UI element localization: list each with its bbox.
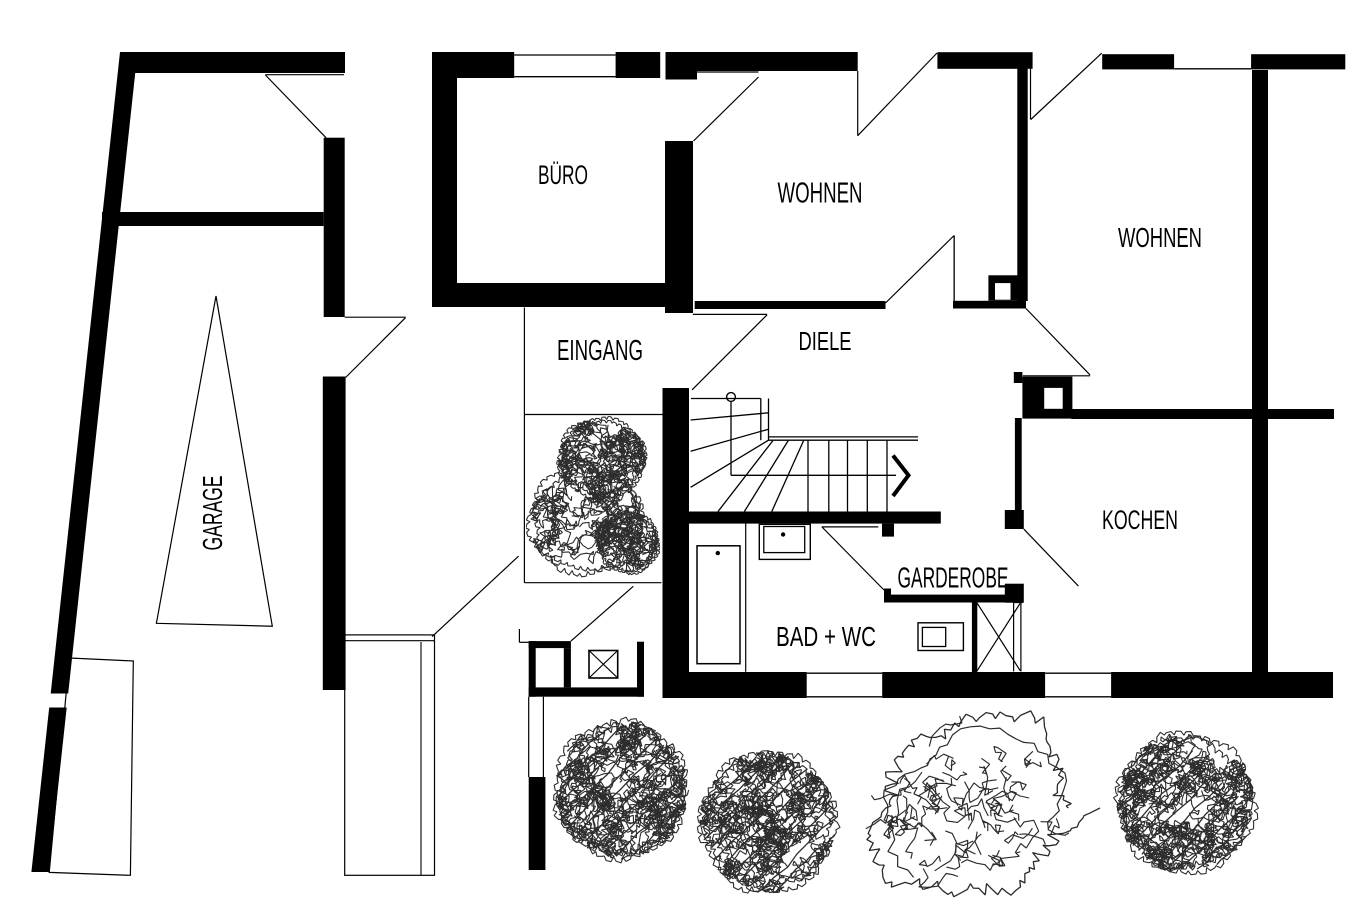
svg-text:BAD + WC: BAD + WC — [776, 621, 876, 652]
svg-text:DIELE: DIELE — [799, 326, 852, 356]
svg-text:GARDEROBE: GARDEROBE — [898, 563, 1009, 595]
svg-text:KOCHEN: KOCHEN — [1102, 505, 1178, 535]
svg-text:WOHNEN: WOHNEN — [1118, 222, 1202, 253]
svg-text:WOHNEN: WOHNEN — [778, 178, 863, 210]
svg-text:GARAGE: GARAGE — [197, 476, 228, 551]
svg-text:BÜRO: BÜRO — [538, 160, 588, 190]
svg-text:EINGANG: EINGANG — [557, 335, 643, 367]
